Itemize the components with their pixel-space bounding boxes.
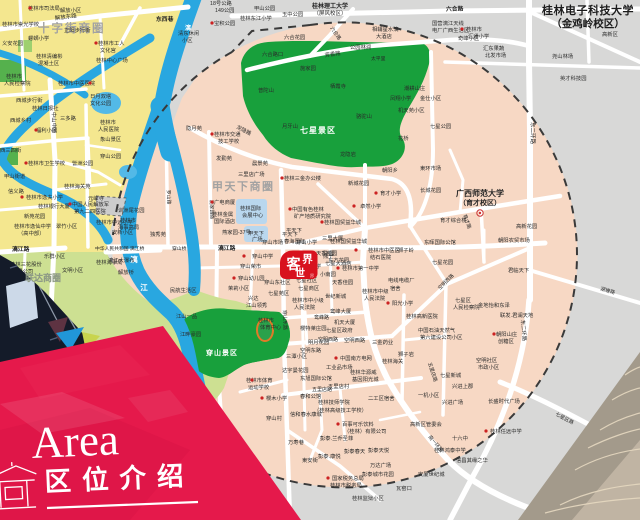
svg-text:育才综合楼: 育才综合楼: [440, 216, 467, 224]
svg-text:创糖区: 创糖区: [498, 337, 515, 345]
svg-text:甲天下商圈: 甲天下商圈: [212, 179, 275, 193]
svg-text:西城步行街: 西城步行街: [16, 96, 43, 104]
svg-text:万寿巷: 万寿巷: [288, 438, 305, 446]
svg-text:穿山东路: 穿山东路: [281, 310, 289, 330]
svg-text:文明小区: 文明小区: [62, 266, 84, 274]
svg-text:七星商区: 七星商区: [298, 284, 320, 292]
svg-text:发勤苑: 发勤苑: [216, 154, 233, 162]
svg-text:彭泰天悦: 彭泰天悦: [368, 446, 390, 454]
svg-text:鸾峰大厦: 鸾峰大厦: [330, 307, 352, 315]
svg-text:鸾峰路: 鸾峰路: [314, 314, 329, 321]
svg-text:Area: Area: [30, 414, 120, 468]
svg-text:瓦窑口: 瓦窑口: [396, 484, 412, 492]
svg-text:尧山林场: 尧山林场: [552, 52, 573, 60]
svg-text:汇东果蔬: 汇东果蔬: [483, 44, 505, 52]
svg-text:穿山东社区: 穿山东社区: [264, 278, 291, 286]
svg-text:穿山村: 穿山村: [266, 414, 283, 422]
svg-text:西三四街: 西三四街: [0, 146, 22, 154]
svg-text:中国南方电网: 中国南方电网: [340, 354, 372, 362]
svg-text:彭泰春天: 彭泰春天: [344, 447, 366, 455]
svg-text:桂林金属: 桂林金属: [212, 210, 233, 218]
svg-text:育才小学: 育才小学: [380, 189, 401, 197]
svg-text:燕家园-37号: 燕家园-37号: [222, 228, 251, 236]
svg-text:三里店广场: 三里店广场: [238, 170, 265, 178]
svg-text:东二环路: 东二环路: [529, 122, 537, 145]
svg-text:桂林华源威: 桂林华源威: [350, 368, 377, 376]
svg-text:桂林海关: 桂林海关: [382, 357, 404, 365]
svg-text:空明西路: 空明西路: [344, 336, 366, 344]
svg-text:工业品市场: 工业品市场: [326, 363, 353, 371]
svg-text:东晖国际公馆: 东晖国际公馆: [424, 238, 456, 246]
svg-text:技工学校: 技工学校: [218, 137, 240, 145]
svg-text:穿山小学: 穿山小学: [296, 238, 317, 246]
svg-text:会展中心: 会展中心: [242, 211, 264, 219]
svg-text:潮耕山庄: 潮耕山庄: [404, 84, 426, 92]
svg-text:穿山荣市: 穿山荣市: [240, 262, 262, 270]
svg-text:茉莉小区: 茉莉小区: [228, 284, 250, 292]
svg-text:中华人民共和国 漓江桥: 中华人民共和国 漓江桥: [95, 245, 145, 252]
svg-text:七星苑区: 七星苑区: [268, 289, 290, 297]
svg-text:狮子岭: 狮子岭: [398, 246, 415, 254]
svg-text:兴进上郡: 兴进上郡: [452, 382, 474, 390]
svg-text:漓江路: 漓江路: [12, 245, 30, 253]
svg-text:天香佳园: 天香佳园: [316, 249, 337, 257]
svg-text:联发.君澜天地: 联发.君澜天地: [500, 311, 534, 319]
svg-text:六合花园: 六合花园: [284, 33, 305, 41]
svg-text:百事可乐饮料: 百事可乐饮料: [342, 420, 374, 428]
svg-text:朝阳农贸市场: 朝阳农贸市场: [498, 236, 530, 244]
svg-text:北发市场: 北发市场: [485, 51, 506, 59]
svg-text:信义路: 信义路: [8, 187, 25, 195]
svg-text:公园林润: 公园林润: [350, 43, 371, 51]
svg-text:宝积公园: 宝积公园: [214, 19, 235, 27]
svg-text:清东休闲: 清东休闲: [178, 29, 199, 37]
svg-text:民航生活区: 民航生活区: [170, 286, 197, 294]
svg-text:福利小区: 福利小区: [36, 126, 58, 134]
svg-text:兴进广场: 兴进广场: [442, 398, 463, 406]
svg-text:桂林三金办公楼: 桂林三金办公楼: [284, 174, 322, 182]
svg-text:七星景区: 七星景区: [300, 125, 336, 135]
svg-text:桂林市: 桂林市: [258, 316, 275, 324]
svg-text:18号公路: 18号公路: [210, 0, 232, 7]
svg-text:桂林市司法局: 桂林市司法局: [28, 4, 60, 12]
svg-text:万达广场: 万达广场: [370, 461, 391, 469]
svg-text:市政小区: 市政小区: [478, 363, 500, 371]
svg-text:東环市场: 東环市场: [420, 164, 441, 172]
svg-text:穿山景区: 穿山景区: [206, 348, 238, 357]
svg-text:高新区: 高新区: [602, 30, 619, 38]
svg-text:江畔豪园: 江畔豪园: [180, 330, 201, 338]
svg-text:桂林理工大学: 桂林理工大学: [311, 2, 348, 10]
svg-text:机天苑小区: 机天苑小区: [398, 106, 425, 114]
svg-text:训洲尾花园: 训洲尾花园: [118, 206, 145, 214]
svg-text:奇峰小区: 奇峰小区: [458, 34, 480, 42]
svg-text:桂林市中小级: 桂林市中小级: [292, 296, 324, 304]
svg-text:栖霞寺: 栖霞寺: [330, 82, 347, 90]
svg-text:人民检察院: 人民检察院: [453, 303, 480, 311]
svg-text:高新花园: 高新花园: [516, 222, 537, 230]
svg-text:桂林监狱小区: 桂林监狱小区: [352, 494, 384, 502]
svg-text:机天大厦: 机天大厦: [334, 318, 356, 326]
svg-text:晨景苑: 晨景苑: [252, 159, 269, 167]
svg-text:十六中: 十六中: [452, 434, 468, 442]
svg-text:桂林任远中学: 桂林任远中学: [490, 427, 522, 435]
svg-text:大酒店: 大酒店: [376, 32, 392, 40]
svg-text:桂林国贸益华城: 桂林国贸益华城: [324, 218, 362, 226]
svg-text:朝阳乡: 朝阳乡: [382, 166, 398, 174]
svg-text:二工区宿舍: 二工区宿舍: [368, 394, 395, 402]
svg-text:桂林市卫生学校: 桂林市卫生学校: [28, 159, 66, 167]
svg-text:江山领秀: 江山领秀: [246, 301, 268, 309]
svg-text:天香佳园: 天香佳园: [332, 278, 353, 286]
svg-text:文化公园: 文化公园: [90, 99, 111, 107]
svg-text:龙隐岩: 龙隐岩: [340, 150, 356, 158]
svg-text:电厂广西生活区: 电厂广西生活区: [432, 26, 470, 34]
svg-text:解放桥: 解放桥: [118, 268, 135, 276]
svg-text:桂林市: 桂林市: [466, 25, 483, 33]
svg-text:人民检察院: 人民检察院: [4, 79, 31, 87]
svg-text:世: 世: [295, 267, 305, 280]
svg-text:（桂林）有限公司: （桂林）有限公司: [344, 427, 386, 435]
svg-text:（育才校区）: （育才校区）: [459, 198, 501, 207]
svg-text:桂林清编彬: 桂林清编彬: [36, 52, 63, 60]
svg-text:西城乡村: 西城乡村: [10, 116, 32, 124]
svg-text:义安花园: 义安花园: [2, 39, 23, 47]
svg-text:桂林市逸仙中学: 桂林市逸仙中学: [14, 222, 51, 230]
svg-text:穿山公园: 穿山公园: [100, 152, 121, 160]
svg-text:高新区管委会: 高新区管委会: [410, 420, 442, 428]
svg-text:桂林鸿泰中学: 桂林鸿泰中学: [434, 446, 466, 454]
svg-text:穿山幼儿园: 穿山幼儿园: [238, 274, 265, 282]
svg-text:解放小区: 解放小区: [60, 6, 82, 14]
svg-text:七星花园: 七星花园: [432, 258, 453, 266]
svg-text:桂林国贸益华城: 桂林国贸益华城: [330, 237, 368, 245]
svg-text:（金鸡岭校区）: （金鸡岭校区）: [551, 17, 625, 30]
svg-text:世纪新城: 世纪新城: [325, 292, 347, 300]
svg-text:阳光小学: 阳光小学: [392, 299, 413, 307]
svg-text:电线电缆厂: 电线电缆厂: [388, 276, 415, 284]
svg-text:穿山桥: 穿山桥: [172, 245, 187, 252]
svg-text:结石医院: 结石医院: [370, 253, 392, 261]
svg-text:漓江路: 漓江路: [218, 244, 236, 252]
svg-text:桂林市: 桂林市: [100, 118, 117, 126]
svg-text:文化宫: 文化宫: [100, 46, 116, 54]
svg-text:彭泰.康悦: 彭泰.康悦: [318, 452, 341, 460]
svg-text:人民法院: 人民法院: [364, 294, 386, 302]
svg-text:隐月苑: 隐月苑: [186, 124, 203, 132]
svg-text:界: 界: [302, 254, 313, 266]
svg-text:象山景区: 象山景区: [100, 135, 122, 143]
svg-text:独秀苑: 独秀苑: [150, 230, 167, 238]
svg-text:体育中心: 体育中心: [260, 323, 282, 331]
svg-text:施家园: 施家园: [300, 64, 316, 72]
svg-text:卓然小学: 卓然小学: [360, 202, 381, 210]
svg-text:运动学校: 运动学校: [248, 383, 270, 391]
svg-text:樱木小学: 樱木小学: [266, 394, 287, 402]
svg-text:桂林市逸夫小学: 桂林市逸夫小学: [26, 193, 63, 201]
svg-text:宿舍: 宿舍: [390, 284, 401, 292]
svg-text:联达商圈: 联达商圈: [25, 272, 61, 283]
svg-text:七星区政府: 七星区政府: [326, 326, 353, 334]
svg-text:東安街: 東安街: [302, 456, 319, 464]
svg-text:桂林海关苑: 桂林海关苑: [64, 182, 91, 190]
svg-text:相辅星水漓: 相辅星水漓: [372, 25, 399, 33]
svg-text:五里店村: 五里店村: [328, 382, 350, 390]
svg-text:149公园: 149公园: [215, 7, 234, 14]
svg-text:七星新城: 七星新城: [440, 371, 462, 379]
svg-text:穿山中学: 穿山中学: [252, 252, 273, 260]
svg-text:彭泰.兰乔圣菲: 彭泰.兰乔圣菲: [320, 434, 354, 442]
svg-text:三金药业: 三金药业: [372, 338, 393, 346]
svg-text:甲山公园: 甲山公园: [254, 4, 275, 12]
svg-text:国家税务总局: 国家税务总局: [332, 474, 364, 482]
svg-text:月牙山: 月牙山: [282, 122, 298, 130]
svg-text:金地怡和东泽: 金地怡和东泽: [478, 301, 510, 309]
svg-text:桂林市税务局: 桂林市税务局: [330, 481, 362, 489]
svg-text:玉中公园: 玉中公园: [282, 10, 303, 18]
svg-text:樱特莱庄园: 樱特莱庄园: [300, 324, 327, 332]
svg-text:一机小区: 一机小区: [418, 391, 440, 399]
svg-text:第六建设公司小区: 第六建设公司小区: [420, 333, 463, 341]
svg-text:乐群小区: 乐群小区: [44, 252, 66, 260]
svg-text:明月花园: 明月花园: [308, 338, 329, 346]
svg-text:正阳步行街: 正阳步行街: [64, 26, 91, 34]
svg-text:国际酒店: 国际酒店: [214, 217, 235, 225]
svg-text:江山一品: 江山一品: [176, 312, 197, 320]
svg-text:混凝土区: 混凝土区: [38, 59, 60, 67]
svg-text:桂林市: 桂林市: [6, 72, 23, 80]
svg-text:甲山街道: 甲山街道: [4, 172, 26, 180]
svg-text:达宇曼花园: 达宇曼花园: [282, 366, 309, 374]
svg-text:广西师范大学: 广西师范大学: [456, 188, 504, 198]
svg-text:兴达: 兴达: [248, 294, 259, 302]
svg-text:人民医院: 人民医院: [98, 125, 120, 133]
svg-text:东西巷: 东西巷: [156, 15, 174, 23]
svg-text:东旭国际公馆: 东旭国际公馆: [300, 374, 332, 382]
svg-text:彭泰城市花园: 彭泰城市花园: [362, 470, 394, 478]
svg-text:普陀山: 普陀山: [258, 86, 274, 94]
svg-text:穿山市场: 穿山市场: [262, 238, 283, 246]
svg-text:君临天下: 君临天下: [508, 266, 529, 274]
svg-text:七星公园: 七星公园: [430, 122, 451, 130]
svg-text:花桥: 花桥: [398, 134, 409, 142]
svg-text:英才科技园: 英才科技园: [560, 74, 587, 82]
svg-text:国营漓江天线: 国营漓江天线: [432, 19, 464, 27]
svg-text:信昌其缘之华: 信昌其缘之华: [456, 456, 488, 464]
svg-text:中国石油天然气: 中国石油天然气: [418, 326, 456, 334]
svg-text:安厦世纪城: 安厦世纪城: [418, 470, 445, 478]
svg-text:桂林市交通: 桂林市交通: [214, 130, 241, 138]
svg-text:空明东路: 空明东路: [300, 346, 322, 354]
svg-text:七星区: 七星区: [455, 296, 472, 304]
svg-text:长城花园: 长城花园: [420, 186, 441, 194]
svg-text:訾洲公园: 訾洲公园: [72, 160, 93, 167]
svg-text:小南园: 小南园: [320, 270, 336, 278]
svg-text:长盛时代广场: 长盛时代广场: [488, 397, 520, 405]
svg-text:中国有色桂林: 中国有色桂林: [292, 205, 324, 213]
svg-text:桂林中心广场: 桂林中心广场: [96, 56, 128, 64]
svg-text:海事高局: 海事高局: [118, 223, 139, 231]
svg-text:桂林技师学院: 桂林技师学院: [318, 398, 350, 406]
svg-text:翠竹小区: 翠竹小区: [56, 222, 78, 230]
svg-text:桂林市中级: 桂林市中级: [362, 287, 389, 295]
svg-text:桂林高新医院: 桂林高新医院: [406, 312, 438, 320]
svg-text:桂林日报社: 桂林日报社: [32, 104, 59, 112]
svg-text:三多路: 三多路: [60, 114, 77, 122]
svg-text:日月双塔: 日月双塔: [90, 92, 112, 100]
svg-text:平天下: 平天下: [286, 227, 302, 234]
svg-text:六合路口: 六合路口: [262, 50, 283, 58]
svg-text:江: 江: [140, 282, 148, 292]
svg-text:新苑花园: 新苑花园: [24, 212, 45, 220]
svg-text:矿产地质研究院: 矿产地质研究院: [294, 212, 332, 220]
svg-text:骆驼山: 骆驼山: [356, 112, 372, 120]
svg-text:狮子岩: 狮子岩: [398, 350, 414, 358]
svg-text:太平里: 太平里: [371, 55, 386, 62]
svg-text:（屏风校区）: （屏风校区）: [313, 9, 346, 17]
svg-text:桂林东江小学: 桂林东江小学: [240, 14, 272, 22]
svg-text:朝阳山庄: 朝阳山庄: [496, 330, 518, 338]
svg-text:基因阳光城: 基因阳光城: [352, 375, 379, 383]
svg-text:桂林市工人: 桂林市工人: [98, 39, 125, 47]
svg-text:桂林市崇光学校: 桂林市崇光学校: [2, 20, 40, 28]
svg-text:（桂林高级技工学校）: （桂林高级技工学校）: [314, 406, 367, 414]
svg-text:桂林市: 桂林市: [120, 216, 137, 224]
svg-text:七星大酒店: 七星大酒店: [325, 259, 352, 267]
svg-text:金仕小区: 金仕小区: [420, 94, 442, 102]
svg-text:春和公馆: 春和公馆: [300, 392, 321, 400]
svg-text:桂林电子科技大学: 桂林电子科技大学: [541, 3, 634, 17]
svg-text:广电商厦: 广电商厦: [214, 198, 236, 206]
svg-text:螺蛳小学: 螺蛳小学: [28, 34, 49, 42]
svg-text:凤翔小学: 凤翔小学: [390, 94, 411, 102]
svg-text:桂林银行大厦: 桂林银行大厦: [38, 202, 70, 210]
svg-text:人民法院: 人民法院: [294, 303, 316, 311]
svg-text:新城花园: 新城花园: [348, 179, 369, 187]
svg-text:信和春水康城: 信和春水康城: [290, 410, 322, 418]
svg-text:桂林市中医医: 桂林市中医医: [368, 246, 400, 254]
svg-text:桂林国际: 桂林国际: [240, 204, 262, 212]
svg-text:空明社区: 空明社区: [476, 356, 498, 364]
svg-text:漓江大瀑布: 漓江大瀑布: [108, 256, 135, 264]
svg-text:（高中部）: （高中部）: [18, 229, 45, 237]
svg-text:元峰寺: 元峰寺: [88, 194, 105, 202]
svg-text:第九二四医院: 第九二四医院: [74, 207, 106, 215]
svg-text:桂林市体育: 桂林市体育: [246, 376, 273, 384]
svg-text:小区: 小区: [182, 36, 193, 44]
